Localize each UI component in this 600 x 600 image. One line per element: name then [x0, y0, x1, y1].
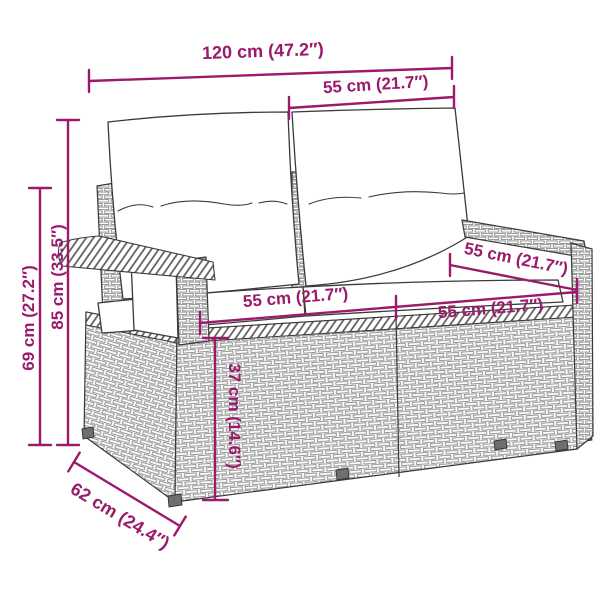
sofa-foot — [336, 468, 349, 480]
back-cushion-right — [292, 108, 469, 286]
dim-overall-height: 85 cm (33.5″) — [48, 120, 79, 445]
sofa-foot — [168, 494, 182, 507]
dim-armrest-height: 69 cm (27.2″) — [19, 188, 51, 445]
sofa-foot — [494, 439, 507, 450]
diagram-canvas: 120 cm (47.2″) 55 cm (21.7″) 85 cm (33.5… — [0, 0, 600, 600]
sofa-foot — [82, 427, 94, 439]
dim-seat-height-label: 37 cm (14.6″) — [225, 363, 244, 468]
dim-overall-height-label: 85 cm (33.5″) — [48, 224, 67, 329]
dim-back-section-width-label: 55 cm (21.7″) — [322, 72, 428, 97]
dimension-diagram: 120 cm (47.2″) 55 cm (21.7″) 85 cm (33.5… — [0, 0, 600, 600]
sofa-foot — [555, 440, 568, 451]
dim-overall-width-label: 120 cm (47.2″) — [202, 39, 324, 63]
dim-armrest-height-label: 69 cm (27.2″) — [19, 265, 38, 370]
